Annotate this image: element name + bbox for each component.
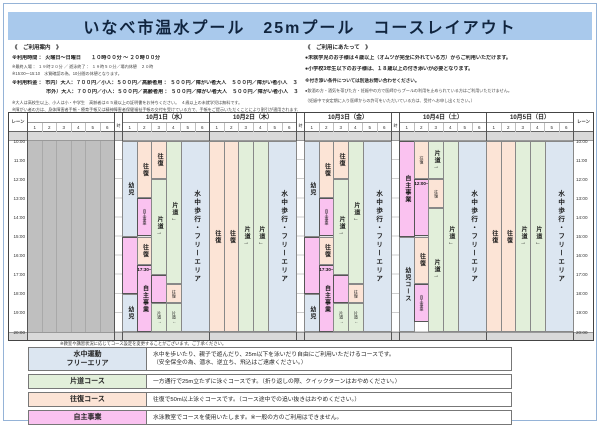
lane-number: 1 [28, 123, 43, 132]
lane-number: 2 [502, 123, 517, 132]
day-body: 幼児幼児往復自主事業往復自主事業17:30~往復片道→片道→片道←往復片道←水中… [305, 141, 391, 332]
schedule-block: 片道→ [333, 303, 349, 332]
time-column-header: 時間 [392, 113, 399, 132]
date-header: 10月4日（土） [400, 113, 486, 123]
time-column-body [115, 141, 122, 332]
time-column-body [297, 141, 304, 332]
lane-column: 片道→ [516, 141, 531, 332]
schedule-block [151, 275, 167, 304]
legend-description: 水泳教室でコースを使用いたします。※一般の方のご利用はできません。 [147, 411, 511, 424]
day-body: 自主事業幼児コース往復12:00~往復自主事業片道→往復片道→片道←水中歩行・フ… [400, 141, 486, 332]
lane-number: 4 [167, 123, 182, 132]
block-label: 片道→ [520, 226, 526, 247]
lane-numbers: 123456 [28, 123, 114, 132]
lane-column: 往復自主事業往復自主事業17:30~ [138, 141, 153, 332]
time-label: 18:00 [576, 291, 588, 296]
schedule-block: 片道← [443, 141, 459, 332]
info-line: ※大人は高校生以上、小人は小・中学生 高齢者は６５歳以上の証明書をお持ちください… [12, 100, 298, 105]
schedule-block: 往復 [319, 237, 335, 266]
schedule-block: 自主事業 [399, 141, 415, 237]
day-header: 10月1日（水）123456 [123, 113, 209, 132]
schedule-block: 往復 [414, 237, 430, 285]
block-label: 片道→ [433, 150, 439, 171]
schedule-block [333, 275, 349, 304]
lane-number: 1 [210, 123, 225, 132]
day-column: 10月1日（水）123456幼児幼児往復自主事業往復自主事業17:30~往復片道… [123, 113, 210, 340]
time-label: 17:00 [14, 272, 26, 277]
block-label: 幼児 [309, 182, 315, 196]
reference-lane [28, 141, 43, 332]
legend-table: 水中運動フリーエリア水中を歩いたり、親子で遊んだり、25m以下を泳いだり自由にご… [28, 347, 512, 428]
schedule-block: 往復 [501, 141, 517, 332]
day-column: 10月2日（木）123456往復往復片道→片道←水中歩行・フリーエリア [210, 113, 297, 340]
footer-band [305, 332, 391, 340]
schedule-block: 片道← [166, 141, 182, 284]
legend-desc-line: 水中を歩いたり、親子で遊んだり、25m以下を泳いだり自由にご利用いただけるコース… [153, 351, 505, 359]
schedule-block: 幼児 [122, 141, 138, 237]
info-line: （妊娠中で安定期に入り医師からの許可をいただいている方は、受付へお申し出ください… [305, 98, 593, 103]
header-band [400, 132, 486, 141]
lane-number: 6 [283, 123, 297, 132]
lane-number: 4 [349, 123, 364, 132]
lane-number: 3 [429, 123, 444, 132]
block-label: 自主事業 [325, 209, 329, 225]
lane-number: 1 [123, 123, 138, 132]
time-label: 15:00 [576, 234, 588, 239]
lane-axis-header: レーン [574, 113, 593, 132]
block-label: 自主事業 [143, 209, 147, 225]
lane-column: 往復自主事業往復自主事業17:30~ [320, 141, 335, 332]
header-band [115, 132, 122, 141]
reference-lane [86, 141, 101, 332]
time-axis: 10:0011:0012:0013:0014:0015:0016:0017:00… [574, 141, 593, 332]
block-label: 往復 [491, 230, 497, 244]
lane-number: 4 [444, 123, 459, 132]
lane-number: 3 [334, 123, 349, 132]
lane-column: 片道→往復片道→ [429, 141, 444, 332]
time-label: 10:00 [576, 139, 588, 144]
usage-terms-lines: ●未就学児のお子様は４歳以上（オムツが完全に外れている方）からご利用いただけます… [305, 55, 593, 104]
time-column-header: 時間 [115, 113, 122, 132]
lane-number: 5 [268, 123, 283, 132]
reference-lane [72, 141, 87, 332]
block-label: 片道→ [338, 216, 344, 237]
block-label: 往復 [214, 230, 220, 244]
usage-terms-heading: 《 ご利用にあたって 》 [305, 45, 593, 52]
day-column: 10月3日（金）123456幼児幼児往復自主事業往復自主事業17:30~往復片道… [305, 113, 392, 340]
lane-number: 1 [487, 123, 502, 132]
block-label: 片道→ [339, 311, 343, 324]
block-label: 片道← [172, 311, 176, 324]
legend-row: 往復コース往復で50m以上泳ぐコースです。（コース途中での追い抜きはおやめくださ… [28, 392, 512, 407]
schedule-block: 水中歩行・フリーエリア [545, 141, 574, 332]
time-column-header: 時間 [297, 113, 304, 132]
lane-column: 往復 [502, 141, 517, 332]
block-label: 水中歩行・フリーエリア [279, 190, 286, 284]
time-label: 20:00 [14, 330, 26, 335]
lane-column-pair: 水中歩行・フリーエリア [546, 141, 573, 332]
schedule-block: 片道→ [238, 141, 254, 332]
lane-number: 3 [152, 123, 167, 132]
lane-number: 5 [545, 123, 560, 132]
time-label: 19:00 [576, 310, 588, 315]
lane-column: 往復 [210, 141, 225, 332]
lane-column: 片道← [254, 141, 269, 332]
schedule-block: 幼児コース [399, 237, 415, 333]
day-header: 10月2日（木）123456 [210, 113, 296, 132]
lane-column: 片道←往復片道← [167, 141, 182, 332]
block-label: 往復 [324, 244, 330, 258]
time-label: 13:00 [576, 196, 588, 201]
lane-column: 往復片道→片道→ [152, 141, 167, 332]
schedule-block: 自主事業 [414, 284, 430, 322]
legend-row: 水中運動フリーエリア水中を歩いたり、親子で遊んだり、25m以下を泳いだり自由にご… [28, 347, 512, 371]
block-label: 幼児 [309, 306, 315, 320]
schedule-block: 片道→ [151, 179, 167, 275]
footer-band [115, 332, 122, 340]
lane-number: 6 [473, 123, 487, 132]
schedule-block: 12:00~ [414, 179, 430, 236]
schedule-block: 往復 [348, 284, 364, 303]
block-label: 水中歩行・フリーエリア [469, 190, 476, 284]
usage-guide-section: 《 ご利用案内 》 ※利用時間 ： 火曜日～日曜日 １０時００分 ～ ２０時００… [12, 45, 298, 115]
footer-band [210, 332, 296, 340]
time-header-label: 時間 [297, 122, 304, 131]
time-header-label: 時間 [115, 122, 122, 131]
block-label: 水中歩行・フリーエリア [192, 190, 199, 284]
lane-column: 片道←往復片道← [349, 141, 364, 332]
legend-label: 往復コース [29, 393, 147, 406]
legend-row: 自主事業水泳教室でコースを使用いたします。※一般の方のご利用はできません。 [28, 410, 512, 425]
day-header: 10月4日（土）123456 [400, 113, 486, 132]
block-label: 自主事業 [142, 285, 148, 313]
legend-desc-line: 一方通行で25m立たずに泳ぐコースです。（折り返しの際、クイックターンはおやめく… [153, 378, 505, 386]
block-label: 往復 [338, 153, 344, 167]
schedule-block: 往復 [428, 179, 444, 208]
legend-desc-line: 水泳教室でコースを使用いたします。※一般の方のご利用はできません。 [153, 414, 505, 422]
date-header: 10月2日（木） [210, 113, 296, 123]
footer-band [297, 332, 304, 340]
footer-band [400, 332, 486, 340]
legend-label: 水中運動フリーエリア [29, 348, 147, 370]
footer-band [123, 332, 209, 340]
block-label: 片道← [171, 202, 177, 223]
info-line: 市外）大人：７００円／小人：５００円／高齢者用 ： ５００円／障がい者大人 ５０… [12, 89, 298, 95]
block-label: 往復 [229, 230, 235, 244]
block-label: 往復 [324, 163, 330, 177]
lane-axis-header: レーン [9, 113, 27, 132]
date-header-empty [28, 113, 114, 123]
time-label: 10:00 [14, 139, 26, 144]
date-header: 10月5日（日） [487, 113, 573, 123]
reference-lane [57, 141, 72, 332]
reference-body [28, 141, 114, 332]
block-label: 幼児 [127, 306, 133, 320]
time-label: 11:00 [14, 158, 25, 163]
lane-column-pair: 水中歩行・フリーエリア [182, 141, 209, 332]
block-label: 往復 [142, 244, 148, 258]
info-line: ※利用時間 ： 火曜日～日曜日 １０時００分 ～ ２０時００分 [12, 55, 298, 61]
block-label: 片道→ [156, 216, 162, 237]
day-body: 幼児幼児往復自主事業往復自主事業17:30~往復片道→片道→片道←往復片道←水中… [123, 141, 209, 332]
info-line: ●小学校3年生以下のお子様は、１８歳以上の付き添いが必要となります。 [305, 66, 593, 72]
lane-numbers: 123456 [123, 123, 209, 132]
lane-column: 幼児幼児 [305, 141, 320, 332]
schedule-block: 水中歩行・フリーエリア [363, 141, 392, 332]
schedule-block: 片道← [530, 141, 546, 332]
legend-label-line: 往復コース [70, 395, 105, 404]
time-column-body [392, 141, 399, 332]
block-label: 往復 [142, 163, 148, 177]
schedule-block: 往復 [333, 141, 349, 179]
lane-number: 3 [57, 123, 72, 132]
block-label: 往復 [156, 153, 162, 167]
time-label: 16:00 [576, 253, 588, 258]
schedule-block: 片道← [166, 303, 182, 332]
schedule-block: 自主事業17:30~ [319, 265, 335, 332]
time-label: 11:00 [576, 158, 587, 163]
header-band [28, 132, 114, 141]
block-time-note: 17:30~ [137, 267, 151, 272]
lane-column: 片道← [444, 141, 459, 332]
lane-number: 6 [101, 123, 115, 132]
lane-number: 5 [181, 123, 196, 132]
time-label: 13:00 [14, 196, 26, 201]
lane-column: 自主事業幼児コース [400, 141, 415, 332]
lane-column: 往復 [225, 141, 240, 332]
legend-label-line: 自主事業 [74, 413, 102, 422]
lane-column: 往復12:00~往復自主事業 [415, 141, 430, 332]
schedule-block: 片道← [348, 303, 364, 332]
schedule-block [304, 237, 320, 294]
lane-number: 4 [254, 123, 269, 132]
schedule-block: 往復 [137, 237, 153, 266]
date-header: 10月1日（水） [123, 113, 209, 123]
lane-number: 3 [516, 123, 531, 132]
legend-label-line: 片道コース [70, 377, 105, 386]
time-header-label: 時間 [392, 122, 399, 131]
time-label: 15:00 [14, 234, 26, 239]
day-body: 往復往復片道→片道←水中歩行・フリーエリア [210, 141, 296, 332]
info-line: ※利用料金 ： 市内）大人：７００円／小人：５００円／高齢者用 ： ５００円／障… [12, 80, 298, 86]
schedule-block: 片道→ [428, 208, 444, 332]
reference-lane [43, 141, 58, 332]
block-label: 往復 [434, 190, 438, 198]
time-label: 14:00 [576, 215, 588, 220]
lane-number: 2 [415, 123, 430, 132]
schedule-block: 往復 [151, 141, 167, 179]
block-label: 片道→ [433, 259, 439, 280]
schedule-block: 自主事業17:30~ [137, 265, 153, 332]
lane-number: 6 [196, 123, 210, 132]
time-label: 18:00 [14, 291, 26, 296]
legend-label-line: 水中運動 [74, 350, 102, 359]
lane-numbers: 123456 [400, 123, 486, 132]
schedule-block: 片道→ [151, 303, 167, 332]
schedule-block: 水中歩行・フリーエリア [458, 141, 487, 332]
reference-lane [101, 141, 115, 332]
block-time-note: 12:00~ [414, 181, 428, 186]
lane-number: 2 [43, 123, 58, 132]
time-label: 12:00 [576, 177, 588, 182]
reference-lanes: 123456 [28, 113, 115, 340]
legend-description: 一方通行で25m立たずに泳ぐコースです。（折り返しの際、クイックターンはおやめく… [147, 375, 511, 388]
lane-number: 4 [531, 123, 546, 132]
lane-number: 5 [458, 123, 473, 132]
time-label: 20:00 [576, 330, 588, 335]
block-label: 片道→ [157, 311, 161, 324]
schedule-block: 往復 [166, 284, 182, 303]
schedule-block: 往復 [224, 141, 240, 332]
legend-label: 片道コース [29, 375, 147, 388]
header-band [297, 132, 304, 141]
block-label: 自主事業 [324, 285, 330, 313]
block-label: 往復 [420, 156, 424, 164]
schedule-block: 自主事業 [137, 198, 153, 236]
block-label: 片道→ [243, 226, 249, 247]
lane-number: 5 [86, 123, 101, 132]
info-line: ※15:00～15:10 水質確認の為、10分間の休憩となります。 [12, 71, 298, 76]
lane-number: 6 [378, 123, 392, 132]
footer-band [28, 332, 114, 340]
block-label: 往復 [172, 290, 176, 298]
schedule-block: 片道→ [333, 179, 349, 275]
block-label: 水中歩行・フリーエリア [374, 190, 381, 284]
legend-label: 自主事業 [29, 411, 147, 424]
legend-desc-line: （安全保全の為、潜水、逆立ち、飛込はご遠慮ください。） [153, 359, 505, 367]
block-label: 自主事業 [420, 295, 424, 311]
lane-number: 2 [320, 123, 335, 132]
header-band [123, 132, 209, 141]
header-band [210, 132, 296, 141]
footer-band [487, 332, 573, 340]
schedule-block: 往復 [414, 141, 430, 179]
block-label: 往復 [419, 253, 425, 267]
usage-guide-heading: 《 ご利用案内 》 [12, 45, 298, 52]
lane-number: 4 [72, 123, 87, 132]
lane-numbers: 123456 [305, 123, 391, 132]
day-header: 10月3日（金）123456 [305, 113, 391, 132]
legend-desc-line: 往復で50m以上泳ぐコースです。（コース途中での追い抜きはおやめください。） [153, 396, 505, 404]
schedule-block: 往復 [209, 141, 225, 332]
day-column: 10月4日（土）123456自主事業幼児コース往復12:00~往復自主事業片道→… [400, 113, 487, 340]
block-label: 幼児コース [404, 267, 410, 302]
schedule-block: 水中歩行・フリーエリア [268, 141, 297, 332]
lane-axis-column: レーン10:0011:0012:0013:0014:0015:0016:0017… [9, 113, 28, 340]
block-label: 往復 [354, 290, 358, 298]
lane-number: 1 [305, 123, 320, 132]
time-label: 19:00 [14, 310, 26, 315]
schedule-block: 往復 [319, 141, 335, 198]
time-label: 12:00 [14, 177, 26, 182]
time-axis: 10:0011:0012:0013:0014:0015:0016:0017:00… [9, 141, 27, 332]
block-label: 幼児 [127, 182, 133, 196]
block-label: 片道← [353, 202, 359, 223]
day-body: 往復往復片道→片道←水中歩行・フリーエリア [487, 141, 573, 332]
schedule-block: 片道← [253, 141, 269, 332]
date-header: 10月3日（金） [305, 113, 391, 123]
time-label: 17:00 [576, 272, 588, 277]
schedule-block: 幼児 [304, 141, 320, 237]
schedule-block: 水中歩行・フリーエリア [181, 141, 210, 332]
info-line: ※付き添い条件については別途お問い合わせください。 [305, 78, 593, 84]
schedule-block: 幼児 [122, 294, 138, 332]
schedule-block: 片道→ [428, 141, 444, 179]
block-label: 片道← [535, 226, 541, 247]
pool-schedule-page: { "title": "いなべ市温水プール 25mプール コースレイアウト", … [0, 0, 600, 424]
block-label: 片道← [354, 311, 358, 324]
lane-axis-column: レーン10:0011:0012:0013:0014:0015:0016:0017… [574, 113, 593, 340]
block-time-note: 17:30~ [319, 267, 333, 272]
schedule-block: 幼児 [304, 294, 320, 332]
legend-label-line: フリーエリア [67, 359, 109, 368]
schedule-block: 往復 [486, 141, 502, 332]
lane-number: 5 [363, 123, 378, 132]
usage-guide-lines: ※利用時間 ： 火曜日～日曜日 １０時００分 ～ ２０時００分※最終入場 ： １… [12, 55, 298, 113]
day-header: 10月5日（日）123456 [487, 113, 573, 132]
lane-numbers: 123456 [210, 123, 296, 132]
block-label: 片道← [258, 226, 264, 247]
time-label: 16:00 [14, 253, 26, 258]
block-label: 自主事業 [404, 175, 410, 203]
page-title: いなべ市温水プール 25mプール コースレイアウト [8, 12, 592, 40]
lane-number: 3 [239, 123, 254, 132]
lane-number: 1 [400, 123, 415, 132]
block-label: 片道← [448, 226, 454, 247]
header-band [392, 132, 399, 141]
lane-column: 往復 [487, 141, 502, 332]
footer-band [392, 332, 399, 340]
block-label: 水中歩行・フリーエリア [556, 190, 563, 284]
lane-numbers: 123456 [487, 123, 573, 132]
info-line: ●未就学児のお子様は４歳以上（オムツが完全に外れている方）からご利用いただけます… [305, 55, 593, 61]
lane-column-pair: 水中歩行・フリーエリア [459, 141, 486, 332]
lane-column: 幼児幼児 [123, 141, 138, 332]
lane-column-pair: 水中歩行・フリーエリア [364, 141, 391, 332]
info-line: ●飲酒の方・酒気を帯びた方・妊娠中の方で医師からプールの利用を止められている方は… [305, 88, 593, 93]
reference-header: 123456 [28, 113, 114, 132]
day-column: 10月5日（日）123456往復往復片道→片道←水中歩行・フリーエリア [487, 113, 574, 340]
schedule-block: 往復 [137, 141, 153, 198]
info-line: ※最終入場 ： １９時２０分 ／ 遊泳終了 ： １９時５０分／場内休憩 ２０時 [12, 64, 298, 69]
lane-column: 往復片道→片道→ [334, 141, 349, 332]
header-band [487, 132, 573, 141]
lane-column: 片道→ [239, 141, 254, 332]
lane-column-pair: 水中歩行・フリーエリア [269, 141, 296, 332]
legend-row: 片道コース一方通行で25m立たずに泳ぐコースです。（折り返しの際、クイックターン… [28, 374, 512, 389]
schedule-grid: レーン10:0011:0012:0013:0014:0015:0016:0017… [8, 112, 594, 341]
schedule-block: 片道→ [515, 141, 531, 332]
lane-number: 6 [560, 123, 574, 132]
header-band [305, 132, 391, 141]
schedule-block [122, 237, 138, 294]
lane-number: 2 [138, 123, 153, 132]
lane-column: 片道← [531, 141, 546, 332]
block-label: 往復 [506, 230, 512, 244]
schedule-block: 自主事業 [319, 198, 335, 236]
usage-terms-section: 《 ご利用にあたって 》 ●未就学児のお子様は４歳以上（オムツが完全に外れている… [305, 45, 593, 109]
lane-number: 2 [225, 123, 240, 132]
legend-description: 水中を歩いたり、親子で遊んだり、25m以下を泳いだり自由にご利用いただけるコース… [147, 348, 511, 370]
legend-description: 往復で50m以上泳ぐコースです。（コース途中での追い抜きはおやめください。） [147, 393, 511, 406]
schedule-block: 片道← [348, 141, 364, 284]
time-label: 14:00 [14, 215, 26, 220]
